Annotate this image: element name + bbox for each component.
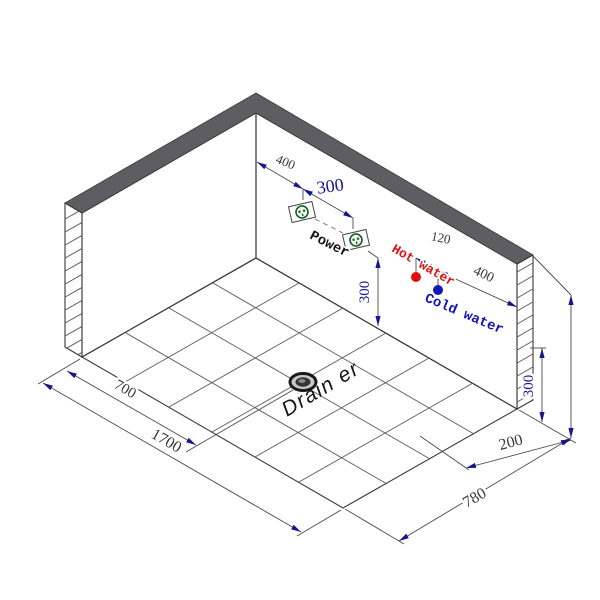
dim-water-height-value: 300 <box>521 375 537 398</box>
dim-water-height: 300 <box>519 348 576 443</box>
hot-water-label: Hot water <box>389 241 457 289</box>
power-outlet-1 <box>289 202 316 223</box>
isometric-drawing: Drain er 400 300 Power 300 120 <box>0 0 600 600</box>
dim-corner-offset: 200 <box>420 431 571 470</box>
wall-top-band <box>65 93 533 264</box>
right-reference-lines <box>533 256 571 438</box>
dim-power-offset-value: 400 <box>274 151 298 172</box>
cold-water-label: Cold water <box>422 291 506 339</box>
power-label: Power <box>307 228 352 261</box>
dim-power-offset: 400 <box>257 151 303 200</box>
hot-water-point <box>411 272 421 282</box>
dim-length-total-value: 1700 <box>148 426 184 457</box>
dim-water-offset-value: 400 <box>471 264 496 286</box>
dim-corner-offset-value: 200 <box>497 431 525 454</box>
drain-label: Drain er <box>278 357 364 421</box>
dim-power-spacing-value: 300 <box>315 174 345 198</box>
left-wall-endcap <box>60 203 88 365</box>
wall-top-edge <box>65 93 533 264</box>
dim-power-height: 300 <box>357 251 378 326</box>
installation-diagram: Drain er 400 300 Power 300 120 <box>0 0 600 600</box>
dim-power-height-value: 300 <box>357 281 373 304</box>
dim-depth-total-value: 780 <box>460 485 489 512</box>
dim-depth-total: 780 <box>345 438 571 544</box>
dim-water-spacing-value: 120 <box>430 228 452 247</box>
